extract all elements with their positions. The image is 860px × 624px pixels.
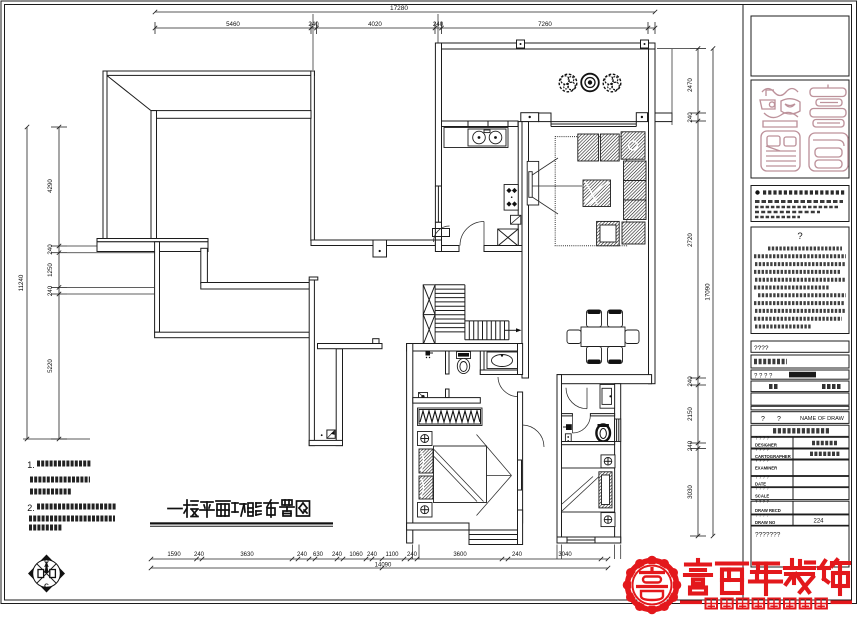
- svg-text:630: 630: [313, 552, 324, 558]
- svg-text:2.: 2.: [27, 503, 35, 513]
- svg-text:? ? ? ?: ? ? ? ?: [755, 458, 769, 463]
- svg-text:5460: 5460: [226, 21, 240, 28]
- svg-text:?: ?: [777, 416, 781, 423]
- svg-text:SCALE: SCALE: [755, 494, 769, 499]
- svg-text:4020: 4020: [368, 21, 382, 28]
- svg-text:EXAMINER: EXAMINER: [755, 466, 777, 471]
- svg-text:17090: 17090: [705, 283, 712, 301]
- svg-text:3030: 3030: [687, 485, 694, 499]
- svg-text:240: 240: [47, 285, 54, 296]
- svg-text:3040: 3040: [558, 552, 572, 558]
- svg-text:240: 240: [687, 112, 694, 123]
- svg-text:?: ?: [761, 416, 765, 423]
- svg-text:? ? ? ?: ? ? ? ?: [755, 499, 769, 504]
- svg-text:4290: 4290: [47, 179, 54, 193]
- svg-text:3600: 3600: [453, 552, 467, 558]
- svg-text:1250: 1250: [47, 263, 54, 277]
- svg-text:? ? ? ?: ? ? ? ?: [755, 486, 769, 491]
- svg-text:240: 240: [297, 552, 308, 558]
- svg-text:1060: 1060: [349, 552, 363, 558]
- svg-text:2150: 2150: [687, 407, 694, 421]
- svg-text:? ? ? ?: ? ? ? ?: [754, 374, 773, 380]
- svg-text:240: 240: [367, 552, 378, 558]
- svg-text:????: ????: [754, 345, 769, 352]
- svg-text:224: 224: [813, 519, 824, 525]
- svg-text:C: C: [44, 583, 49, 590]
- svg-text:240: 240: [47, 244, 54, 255]
- svg-text:240: 240: [308, 21, 319, 28]
- svg-text:NAME OF DRAW: NAME OF DRAW: [800, 416, 845, 422]
- svg-text:? ? ? ?: ? ? ? ?: [755, 475, 769, 480]
- svg-text:14090: 14090: [375, 563, 392, 569]
- svg-text:???????: ???????: [755, 532, 781, 539]
- svg-text:1.: 1.: [27, 460, 35, 470]
- svg-text:? ? ? ?: ? ? ? ?: [755, 513, 769, 518]
- svg-text:? ? ? ?: ? ? ? ?: [755, 436, 769, 441]
- svg-text:?: ?: [797, 231, 802, 242]
- svg-text:5220: 5220: [47, 359, 54, 373]
- svg-text:240: 240: [687, 376, 694, 387]
- svg-text:11240: 11240: [18, 274, 25, 291]
- svg-text:240: 240: [687, 440, 694, 451]
- svg-text:1590: 1590: [167, 552, 181, 558]
- svg-text:17280: 17280: [390, 5, 408, 12]
- svg-text:240: 240: [512, 552, 523, 558]
- svg-text:2720: 2720: [687, 233, 694, 247]
- svg-text:240: 240: [332, 552, 343, 558]
- svg-text:3630: 3630: [240, 552, 254, 558]
- svg-text:1100: 1100: [386, 552, 400, 558]
- svg-text:? ? ? ?: ? ? ? ?: [755, 447, 769, 452]
- svg-text:2470: 2470: [687, 78, 694, 92]
- svg-text:240: 240: [194, 552, 205, 558]
- svg-text:DRAW NO: DRAW NO: [755, 520, 776, 525]
- svg-text:7260: 7260: [538, 21, 552, 28]
